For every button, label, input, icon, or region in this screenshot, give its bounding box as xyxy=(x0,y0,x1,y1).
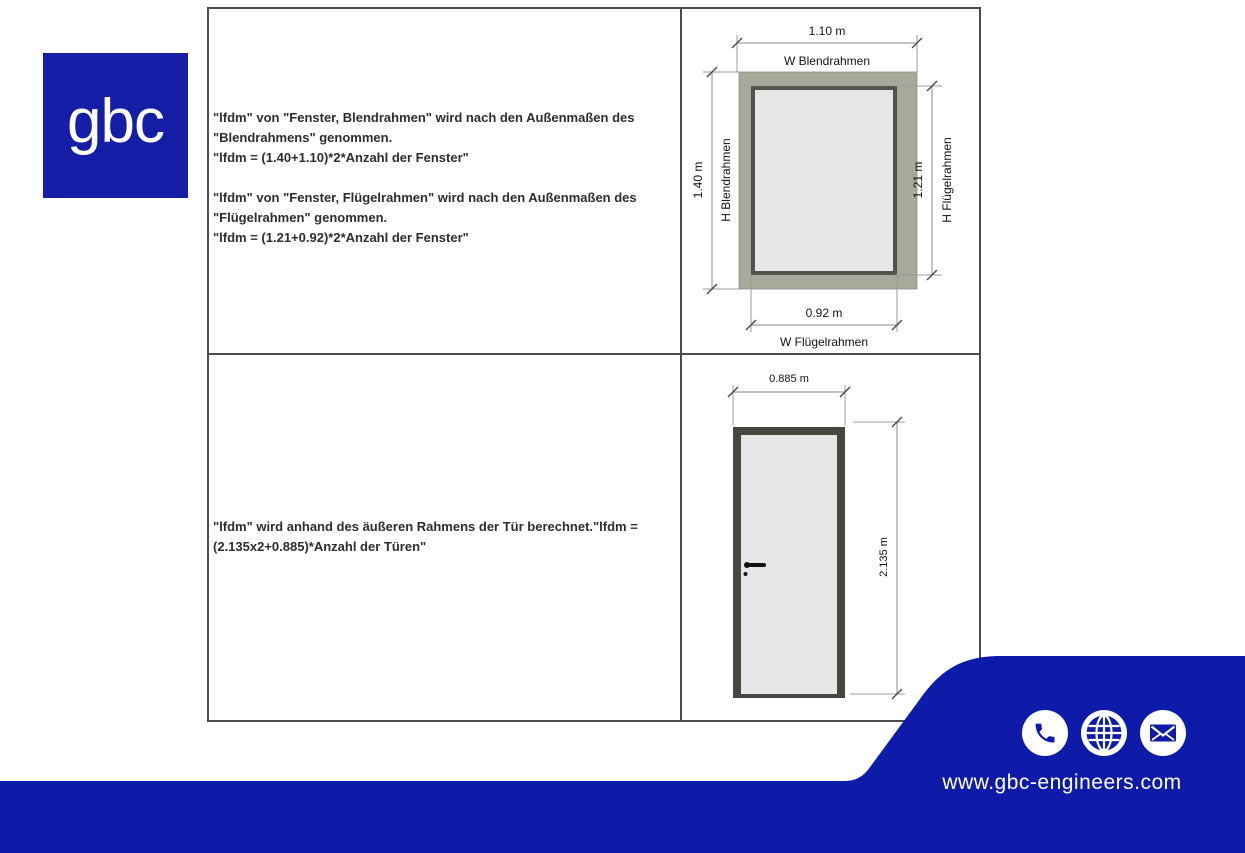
window-glass xyxy=(755,90,893,271)
paragraph-gap xyxy=(213,168,679,188)
footer-banner xyxy=(0,640,1245,853)
globe-icon[interactable] xyxy=(1081,710,1127,756)
window-spec-para1: "lfdm" von "Fenster, Blendrahmen" wird n… xyxy=(213,108,679,148)
page: gbc "lfdm" von "Fenster, Blendrahmen" wi… xyxy=(0,0,1245,853)
window-spec-para2: "lfdm = (1.40+1.10)*2*Anzahl der Fenster… xyxy=(213,148,679,168)
window-width-outer-label: W Blendrahmen xyxy=(784,54,870,68)
window-height-outer-label: H Blendrahmen xyxy=(719,138,733,221)
door-spec-text: "lfdm" wird anhand des äußeren Rahmens d… xyxy=(213,517,683,557)
logo-text: gbc xyxy=(67,91,164,153)
window-spec-para4: "lfdm = (1.21+0.92)*2*Anzahl der Fenster… xyxy=(213,228,679,248)
phone-icon[interactable] xyxy=(1022,710,1068,756)
door-spec-para1: "lfdm" wird anhand des äußeren Rahmens d… xyxy=(213,517,683,557)
table-row-divider xyxy=(209,353,979,355)
window-height-inner-dim: 1.21 m xyxy=(911,162,925,199)
door-width-dim: 0.885 m xyxy=(769,373,809,385)
window-spec-para3: "lfdm" von "Fenster, Flügelrahmen" wird … xyxy=(213,188,679,228)
window-width-inner-dim: 0.92 m xyxy=(806,306,843,320)
email-icon[interactable] xyxy=(1140,710,1186,756)
window-spec-text: "lfdm" von "Fenster, Blendrahmen" wird n… xyxy=(213,108,679,248)
window-width-outer-dim: 1.10 m xyxy=(809,24,846,38)
footer-shape xyxy=(0,656,1245,853)
window-height-outer-dim: 1.40 m xyxy=(691,162,705,199)
door-height-dim: 2.135 m xyxy=(878,537,890,577)
company-logo: gbc xyxy=(43,53,188,198)
window-diagram: 1.10 m W Blendrahmen 1.40 m H Blendrahme… xyxy=(685,10,977,350)
website-link[interactable]: www.gbc-engineers.com xyxy=(930,771,1194,795)
table-column-divider xyxy=(680,9,682,720)
window-height-inner-label: H Flügelrahmen xyxy=(940,137,954,222)
window-width-inner-label: W Flügelrahmen xyxy=(780,335,868,349)
